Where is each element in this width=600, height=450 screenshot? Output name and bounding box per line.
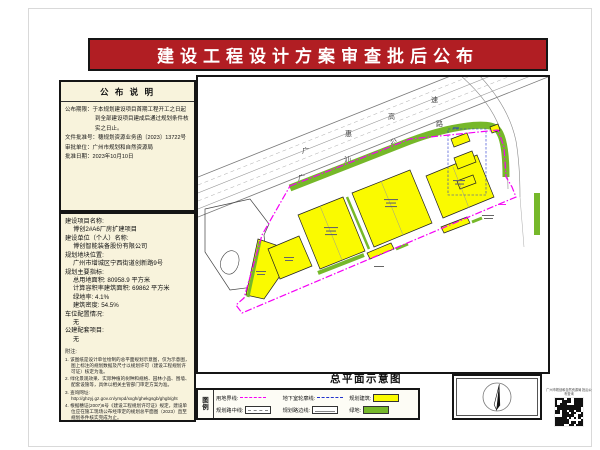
legend-rows: 用地界线:地下室轮廓线:规划建筑:规划路中线:规划路边线:绿地: [214, 390, 418, 418]
project-info-line: 规划主要指标: [65, 269, 190, 277]
north-arrow-box [452, 374, 542, 420]
svg-text:高: 高 [388, 112, 395, 121]
legend-swatch-roadcenter [245, 406, 271, 414]
legend-swatch-boundary [240, 394, 266, 402]
project-info-line: 广州市增城区宁西街道创新路9号 [65, 260, 190, 268]
note-item: 3. 查询网址: http://ghzyj.gz.gov.cn/ympd/xxg… [65, 390, 190, 402]
planned-buildings [246, 124, 500, 299]
project-info-line: 规划地块位置: [65, 252, 190, 260]
legend: 图例 用地界线:地下室轮廓线:规划建筑:规划路中线:规划路边线:绿地: [196, 388, 420, 420]
legend-item-roadedge: 规划路边线: [283, 406, 350, 414]
announcement-panel: 公 布 说 明 公布期限：于本规划建设项目首期工程开工之日起到全部建设项目建成后… [59, 80, 196, 212]
svg-text:速: 速 [431, 96, 438, 104]
qr-code [554, 397, 584, 427]
project-info-body: 建设项目名称:博创2#A6厂房扩建项目建设单位（个人）名称:博创智能装备股份有限… [61, 214, 194, 344]
pond-outline [220, 251, 239, 274]
legend-item-green: 绿地: [349, 406, 416, 414]
title-banner: 建设工程设计方案审查批后公布 [88, 38, 548, 71]
project-info-line: 博创2#A6厂房扩建项目 [65, 226, 190, 234]
legend-row: 规划路中线:规划路边线:绿地: [216, 406, 416, 414]
site-plan-svg: 广 惠 高 速 广 汕 公 路 [198, 77, 548, 372]
svg-text:路: 路 [436, 119, 443, 128]
legend-title: 图例 [198, 390, 214, 418]
legend-swatch-roadedge [312, 406, 338, 414]
legend-item-basement: 地下室轮廓线: [283, 394, 350, 402]
announcement-header: 公 布 说 明 [61, 82, 194, 102]
legend-swatch-basement [317, 394, 343, 402]
project-info-line: 建筑密度: 54.5% [65, 302, 190, 310]
notes-header: 附注: [65, 349, 190, 356]
notice-sheet: 建设工程设计方案审查批后公布 公 布 说 明 公布期限：于本规划建设项目首期工程… [0, 0, 600, 450]
green-strip-east [534, 193, 540, 235]
project-info-line: 计算容积率建筑面积: 69862 平方米 [65, 285, 190, 293]
note-item: 2. 绿化景观效果、实际种植的树种和规格、园林小品、围墙、配套设施等，具体以相关… [65, 376, 190, 388]
project-info-line: 车位配置情况: [65, 311, 190, 319]
project-info-line: 绿地率: 4.1% [65, 294, 190, 302]
project-info-line: 公建配套项目: [65, 327, 190, 335]
north-arrow-icon [477, 378, 517, 416]
legend-item-building: 规划建筑: [349, 394, 416, 402]
announcement-line: 审批单位：广州市规划和自然资源局 [65, 144, 190, 153]
plan-title: 总平面示意图 [330, 371, 402, 386]
legend-row: 用地界线:地下室轮廓线:规划建筑: [216, 394, 416, 402]
notes-body: 1. 该图纸是设计单位绘制的总平面规划示意图，仅为示意图，图上标注的规划数据及尺… [65, 357, 190, 421]
page-title: 建设工程设计方案审查批后公布 [157, 42, 479, 67]
announcement-body: 公布期限：于本规划建设项目首期工程开工之日起到全部建设项目建成后通过规划条件核实… [61, 102, 194, 167]
notes-section: 附注: 1. 该图纸是设计单位绘制的总平面规划示意图，仅为示意图，图上标注的规划… [61, 344, 194, 420]
qr-block: 广州市规划和自然资源局 批后公布查询 [546, 388, 592, 427]
qr-caption: 广州市规划和自然资源局 批后公布查询 [546, 388, 592, 396]
legend-swatch-green [363, 406, 389, 414]
note-item: 1. 该图纸是设计单位绘制的总平面规划示意图，仅为示意图，图上标注的规划数据及尺… [65, 357, 190, 375]
project-info-line: 博创智能装备股份有限公司 [65, 243, 190, 251]
project-info-panel: 建设项目名称:博创2#A6厂房扩建项目建设单位（个人）名称:博创智能装备股份有限… [59, 212, 196, 422]
announcement-line: 文件批准号：穗规划资源业务函〔2023〕13722号 [65, 134, 190, 143]
legend-item-boundary: 用地界线: [216, 394, 283, 402]
legend-item-roadcenter: 规划路中线: [216, 406, 283, 414]
gatehouse-1 [367, 243, 394, 259]
legend-swatch-building [373, 394, 399, 402]
project-info-line: 无 [65, 336, 190, 344]
svg-text:广: 广 [302, 146, 309, 155]
announcement-line: 公布期限：于本规划建设项目首期工程开工之日起到全部建设项目建成后通过规划条件核实… [65, 106, 190, 134]
project-info-line: 建设单位（个人）名称: [65, 235, 190, 243]
gatehouse-2 [441, 217, 470, 233]
announcement-line: 批准日期：2023年10月10日 [65, 153, 190, 162]
svg-text:惠: 惠 [345, 129, 352, 138]
note-item: 4. 根据穗证(2007)6号《建设工程规划许可证》规定，建设单位应在施工现场公… [65, 403, 190, 421]
site-plan-map: 广 惠 高 速 广 汕 公 路 [196, 75, 550, 374]
